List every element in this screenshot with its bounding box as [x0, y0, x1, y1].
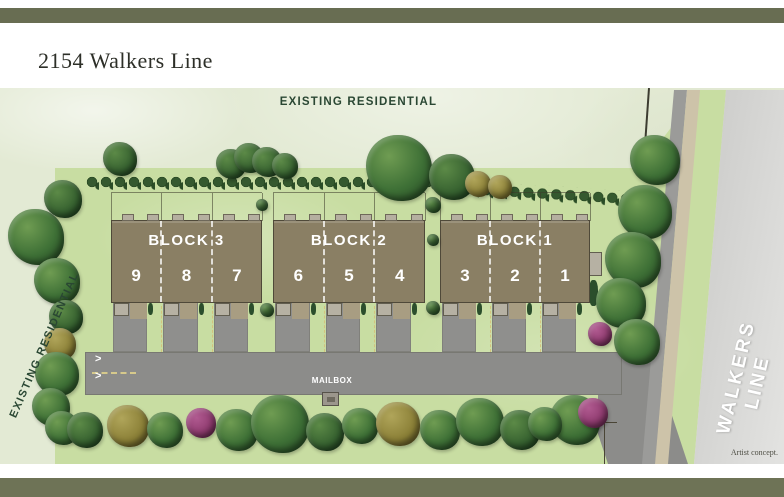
rear-porch [526, 214, 538, 221]
tree [272, 153, 298, 179]
rear-porch [476, 214, 488, 221]
unit-row: 321 [441, 221, 589, 302]
unit-cell: 7 [211, 221, 261, 302]
rear-porch [223, 214, 235, 221]
page-header: 2154 Walkers Line [0, 0, 784, 88]
garage-shrub [527, 303, 532, 315]
unit-cell: 6 [274, 221, 323, 302]
tree [260, 303, 274, 317]
flowering-bush [588, 322, 612, 346]
unit-number: 1 [560, 266, 569, 286]
unit-cell: 5 [323, 221, 374, 302]
driveway-apron [231, 303, 248, 319]
tree [427, 234, 439, 246]
garage [377, 303, 392, 316]
rear-porch [147, 214, 159, 221]
tree [366, 135, 432, 201]
tree [251, 395, 309, 453]
artist-concept-note: Artist concept. [648, 448, 778, 457]
garage [443, 303, 458, 316]
garage [543, 303, 558, 316]
garage [493, 303, 508, 316]
tree [426, 301, 440, 315]
olive-tree [488, 175, 512, 199]
page: { "header": { "title": "2154 Walkers Lin… [0, 0, 784, 497]
driveway-apron [559, 303, 576, 319]
unit-cell: 4 [373, 221, 424, 302]
tree [44, 180, 82, 218]
fence-post-line [590, 193, 591, 221]
road-direction-arrow: > [95, 354, 101, 364]
rear-porch [198, 214, 210, 221]
rear-porch [411, 214, 423, 221]
mailbox-label: MAILBOX [287, 376, 377, 385]
unit-cell: 3 [441, 221, 489, 302]
garage-shrub [199, 303, 204, 315]
rear-porch [551, 214, 563, 221]
tree [528, 407, 562, 441]
end-unit-garage [589, 252, 602, 276]
unit-number: 9 [131, 266, 140, 286]
road-direction-arrow: > [95, 371, 101, 381]
unit-cell: 2 [489, 221, 539, 302]
tree [67, 412, 103, 448]
unit-number: 3 [460, 266, 469, 286]
building-block-1: BLOCK 1321 [440, 220, 590, 303]
top-accent-bar [0, 8, 784, 23]
driveway-apron [180, 303, 197, 319]
unit-cell: 8 [160, 221, 210, 302]
driveway-apron [343, 303, 360, 319]
bottom-accent-bar [0, 478, 784, 497]
tree [147, 412, 183, 448]
tree [306, 413, 344, 451]
unit-cell: 9 [112, 221, 160, 302]
driveway-apron [130, 303, 147, 319]
tree [342, 408, 378, 444]
driveway-apron [393, 303, 410, 319]
olive-tree [107, 405, 149, 447]
rear-porch [451, 214, 463, 221]
unit-number: 8 [182, 266, 191, 286]
garage-shrub [412, 303, 417, 315]
fence-post-line [111, 193, 112, 221]
tree [618, 185, 672, 239]
rear-porch [309, 214, 321, 221]
garage [276, 303, 291, 316]
olive-tree [376, 402, 420, 446]
garage [114, 303, 129, 316]
lot-line-dashed [161, 306, 162, 352]
property-fence-corner [604, 422, 617, 464]
garage [215, 303, 230, 316]
garage-shrub [249, 303, 254, 315]
fence-post-line [273, 193, 274, 221]
page-title: 2154 Walkers Line [38, 48, 438, 74]
unit-number: 5 [344, 266, 353, 286]
tree [256, 199, 268, 211]
unit-cell: 1 [539, 221, 589, 302]
garage [327, 303, 342, 316]
unit-row: 654 [274, 221, 424, 302]
building-block-2: BLOCK 2654 [273, 220, 425, 303]
lot-line-dashed [490, 306, 491, 352]
fence-post-line [490, 193, 491, 221]
tree [103, 142, 137, 176]
rear-porch [335, 214, 347, 221]
unit-number: 4 [395, 266, 404, 286]
rear-porch [172, 214, 184, 221]
rear-porch [360, 214, 372, 221]
garage-shrub [577, 303, 582, 315]
building-block-3: BLOCK 3987 [111, 220, 262, 303]
driveway-apron [509, 303, 526, 319]
page-footer [0, 464, 784, 497]
tree [456, 398, 504, 446]
lot-line-dashed [212, 306, 213, 352]
rear-porch [576, 214, 588, 221]
driveway-apron [459, 303, 476, 319]
fence-post-line [540, 193, 541, 221]
garage-shrub [311, 303, 316, 315]
lot-line-dashed [324, 306, 325, 352]
tree [8, 209, 64, 265]
tree [425, 197, 441, 213]
internal-road [85, 352, 622, 395]
driveway-apron [292, 303, 309, 319]
lot-line-dashed [374, 306, 375, 352]
mailbox-icon [322, 392, 339, 406]
unit-number: 6 [294, 266, 303, 286]
rear-porch [248, 214, 260, 221]
rear-porch [501, 214, 513, 221]
fence-post-line [161, 193, 162, 221]
rear-porch [284, 214, 296, 221]
fence-post-line [374, 193, 375, 221]
tree [420, 410, 460, 450]
fence-post-line [212, 193, 213, 221]
garage-shrub [477, 303, 482, 315]
flowering-bush [186, 408, 216, 438]
rear-porch [385, 214, 397, 221]
site-plan-map: > > BLOCK 3987BLOCK 2654BLOCK 1321 EXIST… [0, 88, 784, 464]
tree [630, 135, 680, 185]
rear-porch [122, 214, 134, 221]
tree [614, 319, 660, 365]
existing-residential-label-north: EXISTING RESIDENTIAL [256, 96, 461, 108]
lot-line-dashed [540, 306, 541, 352]
unit-row: 987 [112, 221, 261, 302]
unit-number: 7 [232, 266, 241, 286]
unit-number: 2 [510, 266, 519, 286]
fence-post-line [324, 193, 325, 221]
flowering-bush [578, 398, 608, 428]
garage [164, 303, 179, 316]
